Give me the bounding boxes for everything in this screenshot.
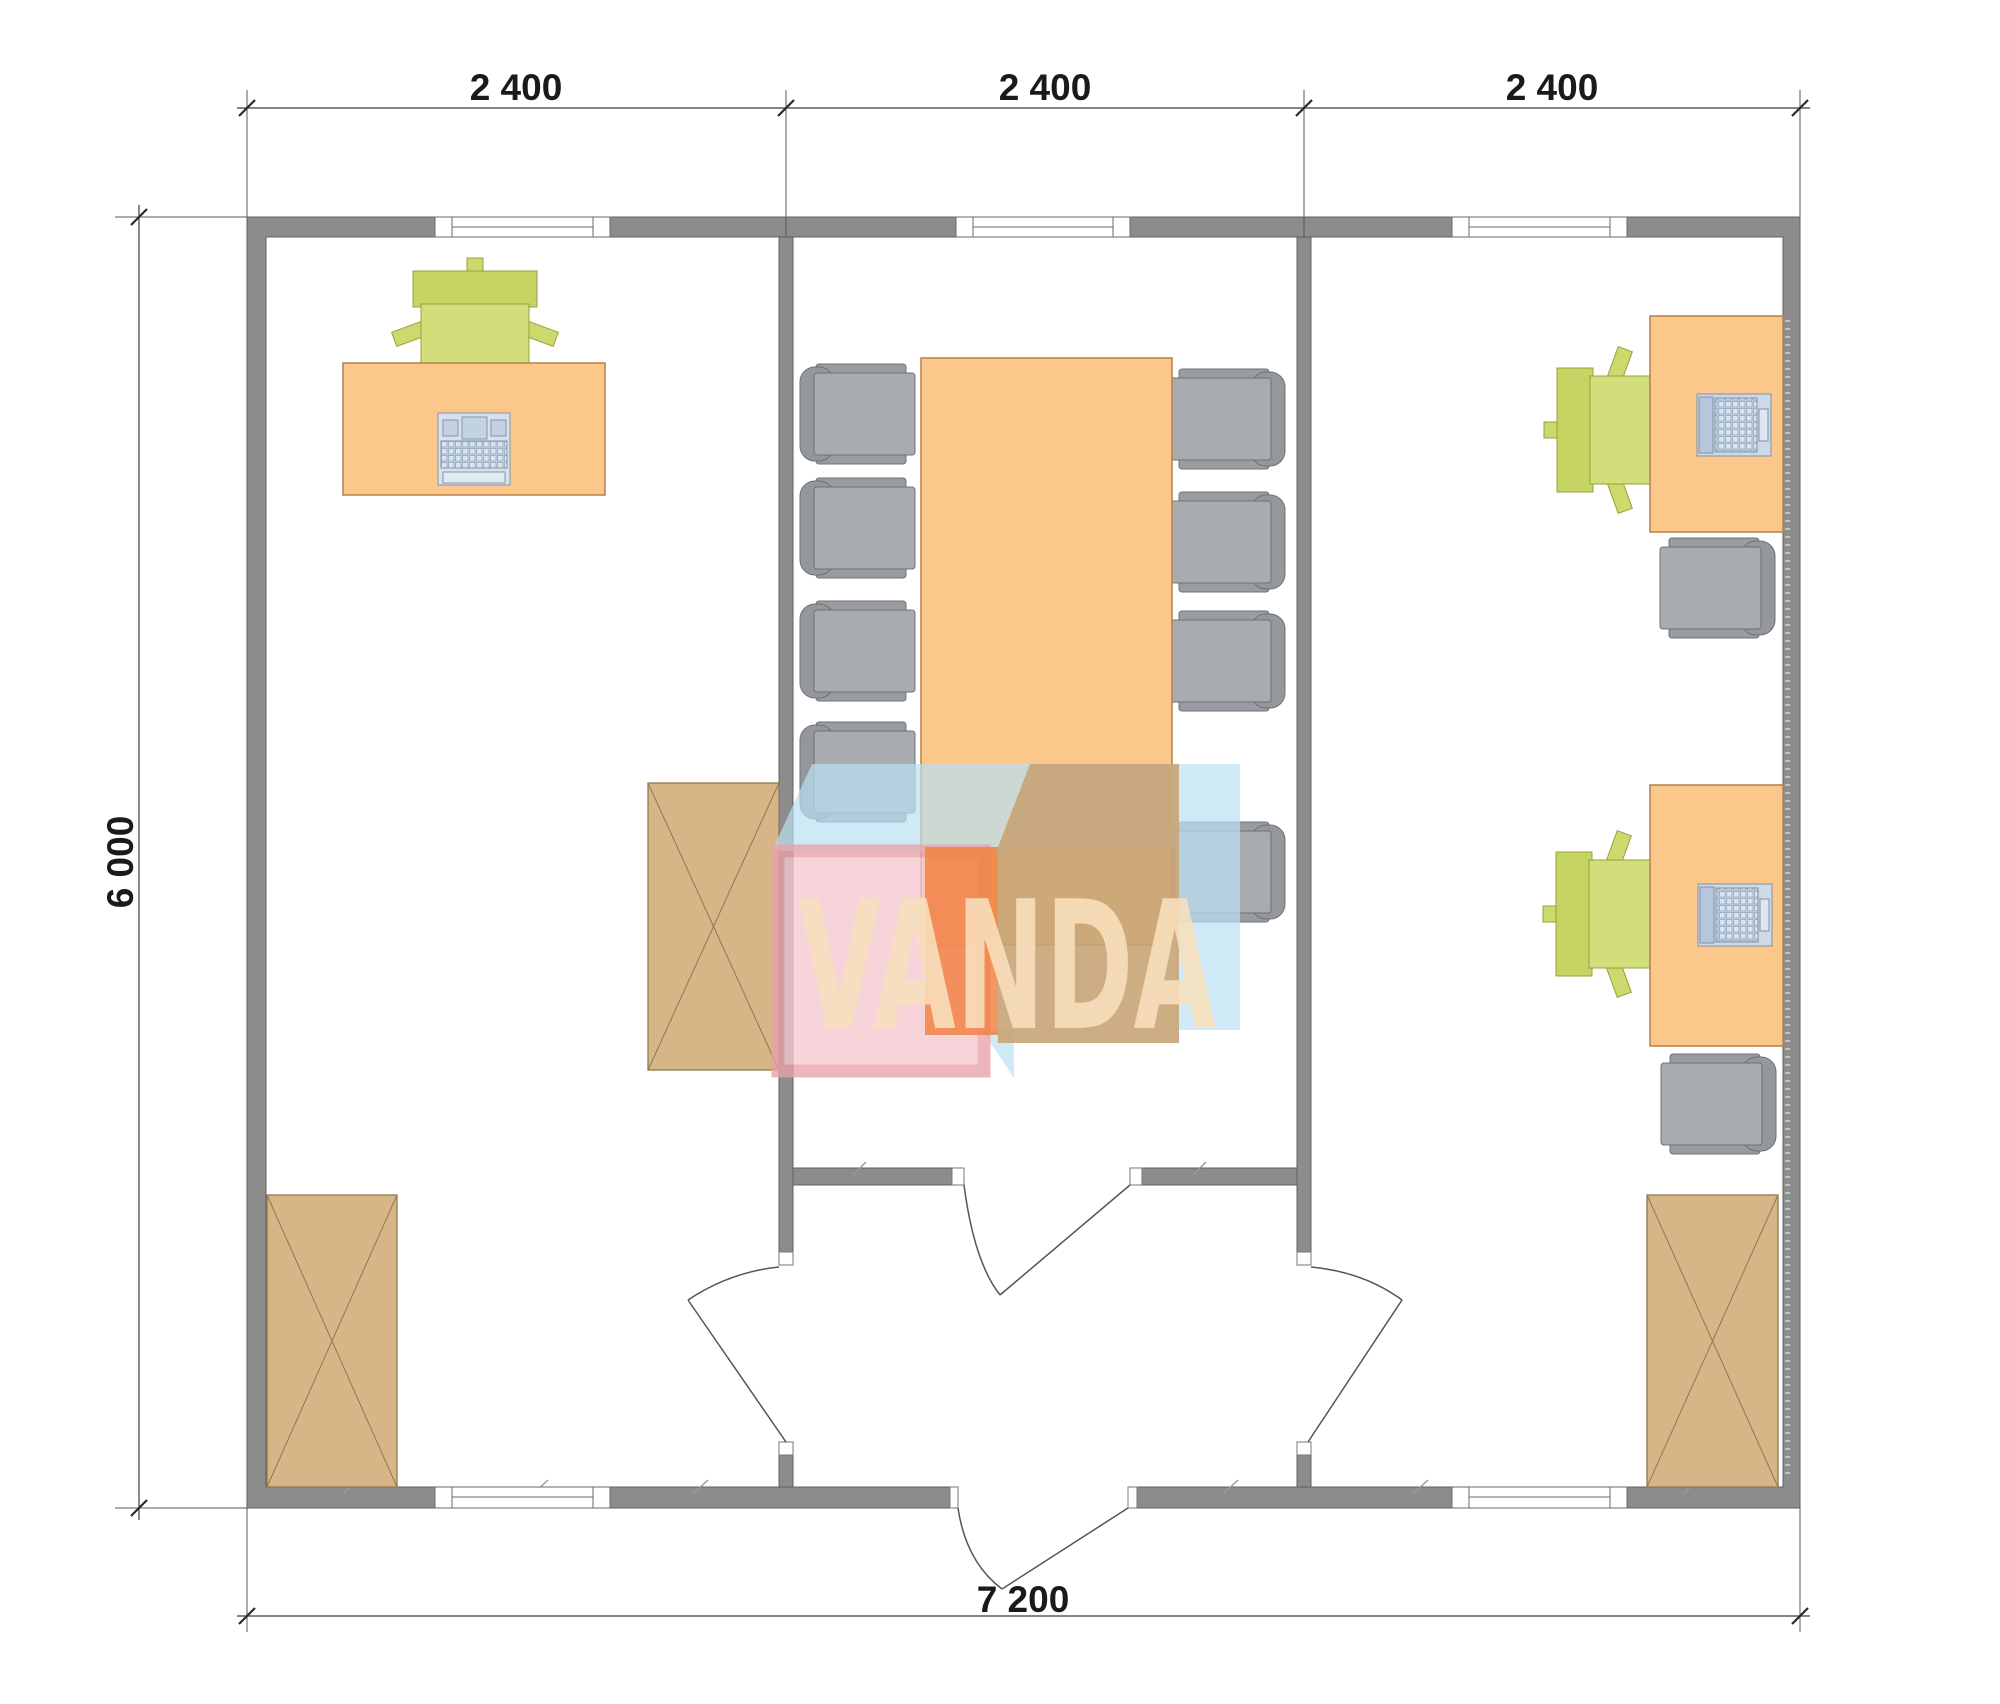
entry-door-swing bbox=[958, 1508, 1128, 1589]
partition-wall-left bbox=[779, 237, 793, 1252]
cabinet bbox=[267, 1195, 397, 1487]
door-jamb bbox=[779, 1252, 793, 1265]
dimension-bottom: 7 200 bbox=[237, 1508, 1810, 1632]
chair bbox=[800, 601, 915, 701]
dim-label-bottom: 7 200 bbox=[977, 1579, 1070, 1620]
door-jamb bbox=[1297, 1442, 1311, 1455]
side-chair bbox=[1660, 538, 1775, 638]
floor-plan-canvas: VANDA 2 400 2 400 2 400 6 000 7 200 bbox=[0, 0, 2000, 1704]
doors bbox=[688, 1185, 1402, 1589]
meeting-room-wall-left bbox=[793, 1168, 952, 1185]
door-jamb bbox=[1297, 1252, 1311, 1265]
door-jamb bbox=[952, 1168, 964, 1185]
floor-plan-page: VANDA 2 400 2 400 2 400 6 000 7 200 bbox=[0, 0, 2000, 1704]
dimension-top: 2 400 2 400 2 400 bbox=[237, 67, 1810, 237]
chair bbox=[1170, 369, 1285, 469]
meeting-room-wall-right bbox=[1142, 1168, 1297, 1185]
office-right bbox=[1543, 316, 1783, 1487]
cabinet bbox=[648, 783, 779, 1070]
side-chair bbox=[1661, 1054, 1776, 1154]
chair bbox=[800, 364, 915, 464]
laptop-icon bbox=[1697, 394, 1771, 456]
office-chair bbox=[1544, 347, 1654, 514]
dim-label-top-3: 2 400 bbox=[1506, 67, 1599, 108]
dim-label-top-2: 2 400 bbox=[999, 67, 1092, 108]
cabinet bbox=[1647, 1195, 1778, 1487]
watermark-text: VANDA bbox=[798, 863, 1216, 1070]
wall-hatch-ticks bbox=[343, 1162, 1698, 1494]
window bbox=[435, 1487, 610, 1508]
door-jamb bbox=[950, 1487, 958, 1508]
door-jamb bbox=[779, 1442, 793, 1455]
window bbox=[956, 217, 1130, 237]
dim-label-left: 6 000 bbox=[100, 816, 141, 909]
door-jamb bbox=[1128, 1487, 1137, 1508]
chair bbox=[800, 478, 915, 578]
entry-door-opening bbox=[950, 1486, 1137, 1509]
partition-wall-left-stub bbox=[779, 1455, 793, 1487]
office-chair bbox=[1543, 831, 1653, 998]
right-office-door-swing bbox=[1308, 1267, 1402, 1442]
partition-wall-right-stub bbox=[1297, 1455, 1311, 1487]
office-chair bbox=[392, 258, 559, 368]
chair bbox=[1170, 611, 1285, 711]
window bbox=[435, 217, 610, 237]
logo-watermark: VANDA bbox=[772, 764, 1240, 1078]
dimension-left: 6 000 bbox=[100, 205, 247, 1520]
dim-label-top-1: 2 400 bbox=[470, 67, 563, 108]
meeting-room-door-swing bbox=[964, 1185, 1130, 1295]
window bbox=[1452, 217, 1627, 237]
partition-wall-right bbox=[1297, 237, 1311, 1252]
laptop-icon bbox=[1698, 884, 1772, 946]
keyboard-icon bbox=[438, 413, 510, 485]
window bbox=[1452, 1487, 1627, 1508]
office-left bbox=[267, 258, 779, 1487]
door-jamb bbox=[1130, 1168, 1142, 1185]
left-office-door-swing bbox=[688, 1267, 786, 1442]
chair bbox=[1170, 492, 1285, 592]
